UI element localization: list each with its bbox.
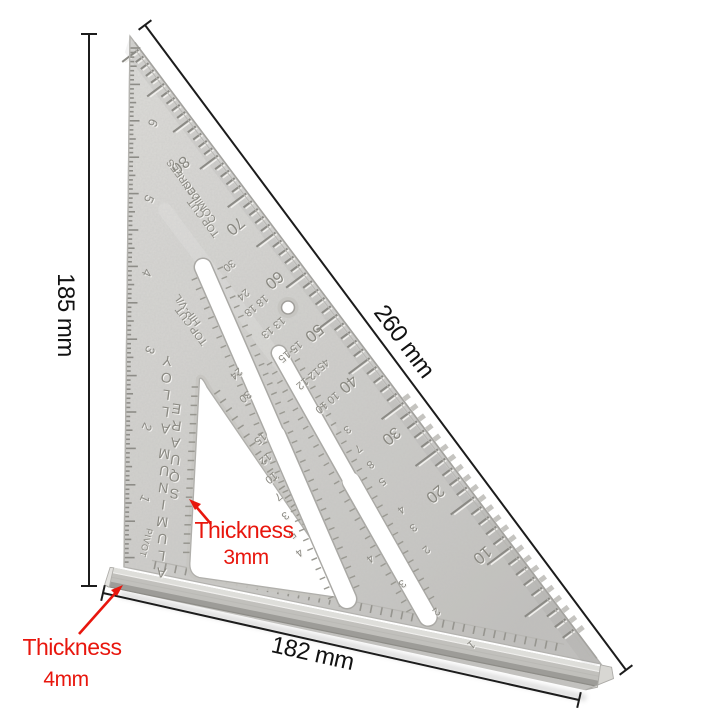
svg-text:Thickness: Thickness [194,517,293,543]
svg-text:3mm: 3mm [223,546,268,569]
svg-text:Q: Q [168,468,181,485]
svg-text:185 mm: 185 mm [52,273,79,357]
svg-text:M: M [157,445,171,462]
svg-text:M: M [155,513,169,530]
svg-text:O: O [160,369,173,386]
svg-text:Thickness: Thickness [22,634,121,660]
svg-text:4mm: 4mm [43,668,88,691]
